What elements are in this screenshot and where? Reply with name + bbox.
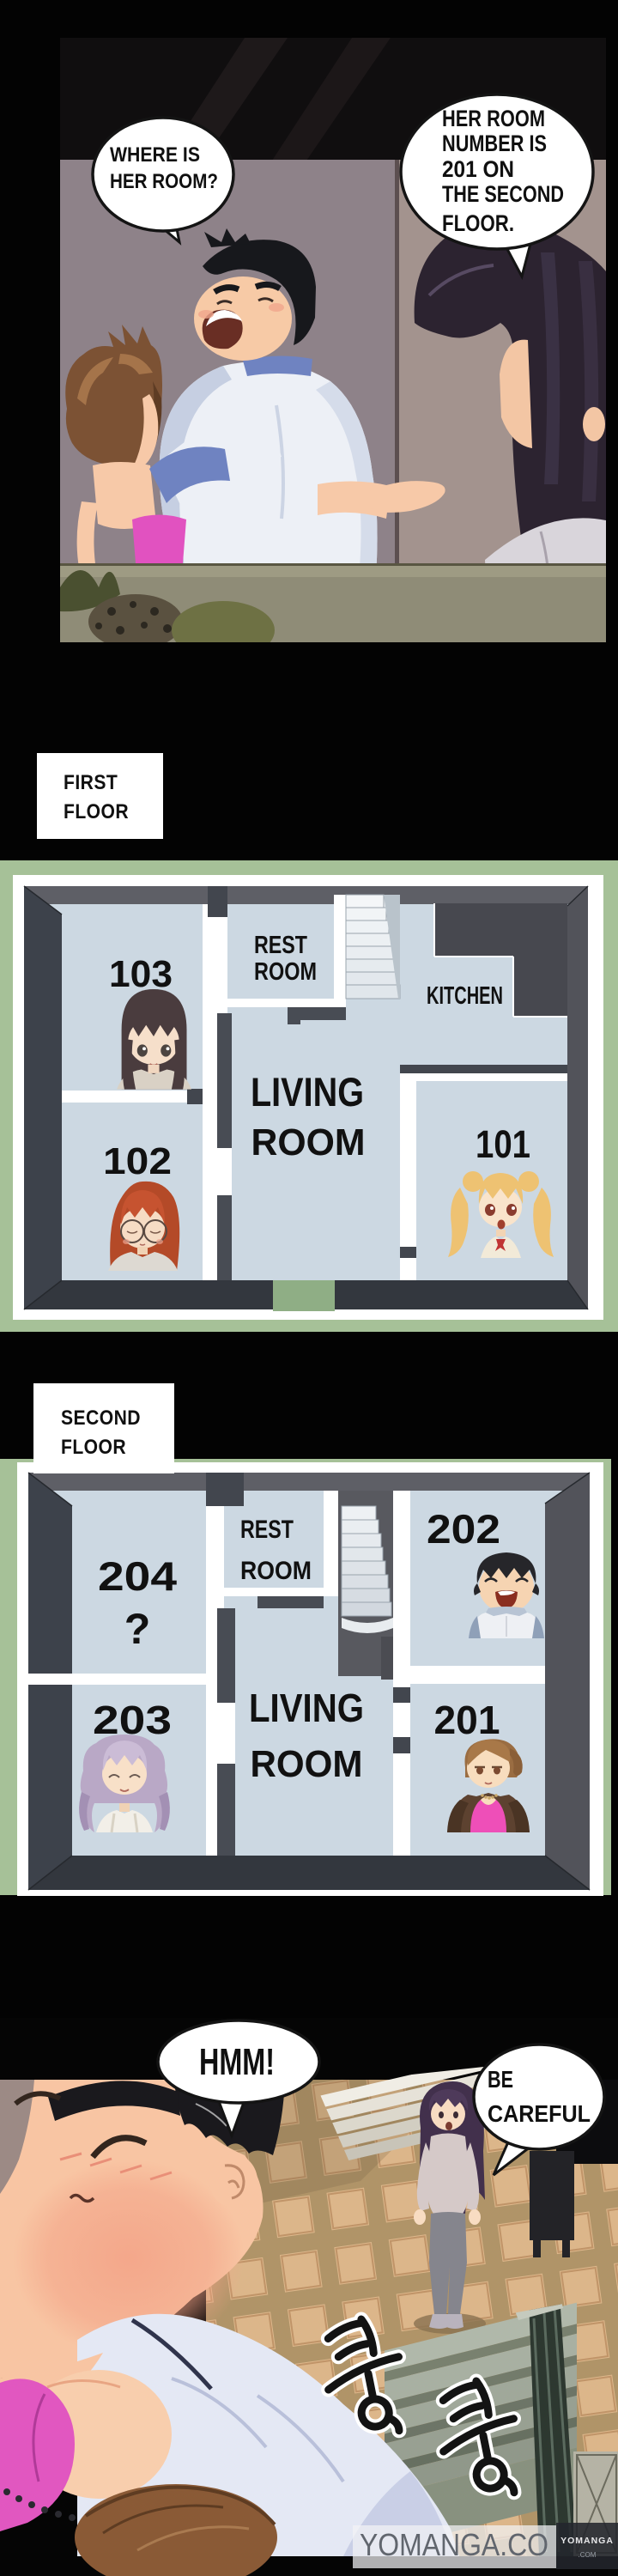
svg-text:KITCHEN: KITCHEN	[427, 982, 503, 1010]
svg-text:THE SECOND: THE SECOND	[442, 181, 564, 207]
svg-text:HER ROOM?: HER ROOM?	[110, 170, 218, 193]
svg-text:102: 102	[103, 1140, 172, 1182]
svg-text:FLOOR.: FLOOR.	[442, 210, 514, 236]
svg-text:LIVING: LIVING	[249, 1686, 364, 1730]
svg-text:101: 101	[476, 1122, 530, 1166]
svg-text:HMM!: HMM!	[199, 2041, 275, 2083]
svg-text:REST: REST	[254, 932, 307, 959]
svg-text:BE: BE	[488, 2066, 513, 2093]
svg-text:YOMANGA: YOMANGA	[560, 2536, 614, 2546]
svg-text:YOMANGA.CO: YOMANGA.CO	[360, 2527, 548, 2562]
svg-text:ROOM: ROOM	[251, 1743, 363, 1785]
svg-text:NUMBER IS: NUMBER IS	[442, 131, 547, 156]
svg-text:201 ON: 201 ON	[442, 156, 514, 182]
svg-text:ROOM: ROOM	[240, 1557, 312, 1585]
svg-text:103: 103	[109, 953, 173, 995]
svg-text:HER ROOM: HER ROOM	[442, 106, 545, 131]
svg-text:201: 201	[434, 1698, 500, 1742]
svg-text:?: ?	[124, 1605, 151, 1653]
svg-text:202: 202	[427, 1506, 500, 1552]
svg-text:CAREFUL: CAREFUL	[488, 2100, 591, 2127]
svg-text:.COM: .COM	[579, 2551, 597, 2559]
svg-text:ROOM: ROOM	[251, 1121, 366, 1163]
svg-text:204: 204	[98, 1553, 177, 1599]
svg-text:ROOM: ROOM	[254, 958, 317, 986]
svg-text:WHERE IS: WHERE IS	[110, 143, 200, 167]
svg-text:REST: REST	[240, 1516, 294, 1544]
svg-text:LIVING: LIVING	[251, 1069, 364, 1115]
